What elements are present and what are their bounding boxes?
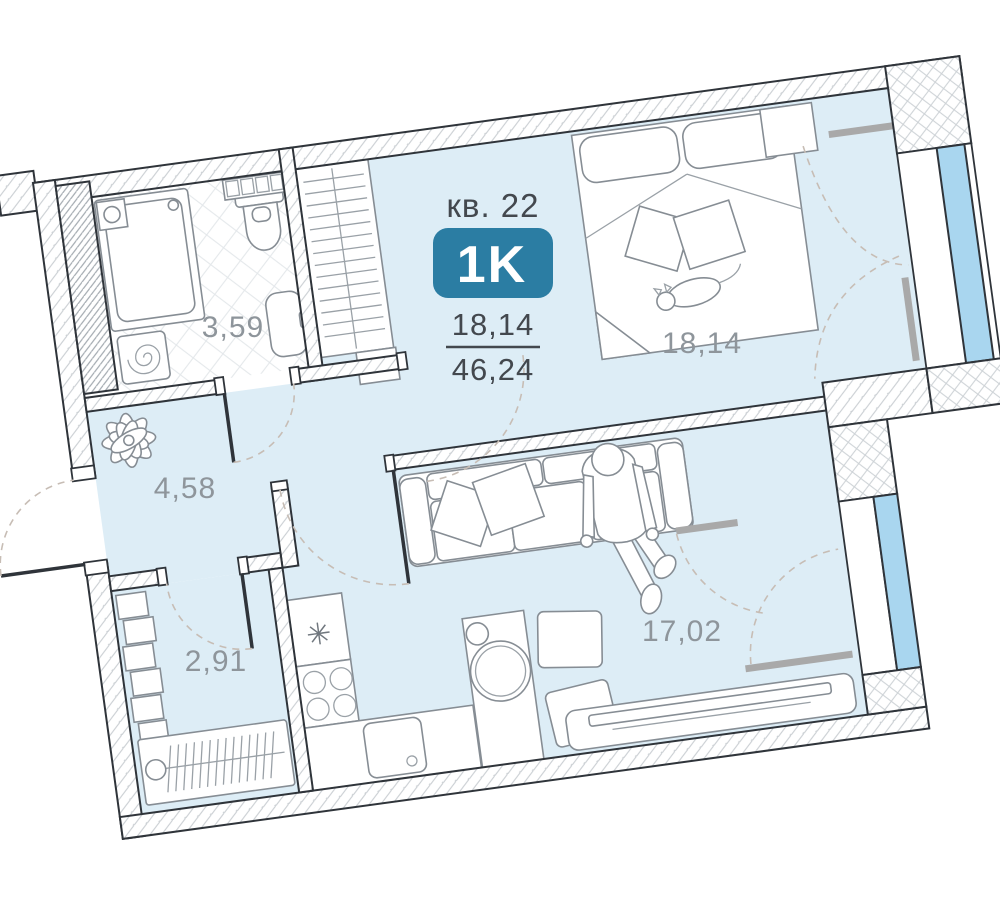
type-badge-label: 1K	[457, 236, 527, 294]
wall-protrusion	[0, 171, 39, 216]
living-area-value: 18,14	[452, 307, 535, 342]
jamb-closet-door	[238, 556, 249, 574]
washing-machine	[117, 331, 171, 385]
living-area-label: 17,02	[642, 615, 722, 648]
fridge: ✳	[287, 593, 351, 667]
stove	[296, 659, 359, 728]
closet-area-label: 2,91	[185, 645, 247, 678]
jamb-entrance-top	[71, 465, 96, 481]
bathroom-area-label: 3,59	[202, 311, 264, 344]
jamb-bedroom-entry	[396, 352, 407, 370]
jamb-closet-door-2	[157, 568, 168, 586]
fridge-icon: ✳	[304, 617, 333, 653]
chair-1	[538, 611, 603, 668]
nightstand	[760, 103, 818, 158]
jamb-bathroom-right	[289, 367, 300, 385]
bathtub	[94, 188, 205, 332]
jamb-living-entry	[384, 455, 395, 472]
jamb-stub-top	[271, 480, 288, 491]
total-area-value: 46,24	[452, 352, 535, 387]
wall-living-window-bottom	[862, 667, 926, 715]
jamb-entrance-bottom	[84, 559, 109, 575]
bedroom-area-label: 18,14	[662, 327, 742, 360]
apartment-number-label: кв. 22	[446, 187, 539, 224]
wall-jog-cross	[926, 358, 1000, 413]
kitchen-sink	[363, 716, 428, 778]
entrance-door	[0, 480, 85, 576]
hallway-area-label: 4,58	[154, 472, 216, 505]
wall-corner-block-topright	[885, 56, 971, 153]
floor-plan: ✳	[0, 0, 1000, 900]
wall-living-window-top	[829, 419, 898, 501]
jamb-bathroom-left	[214, 377, 225, 395]
